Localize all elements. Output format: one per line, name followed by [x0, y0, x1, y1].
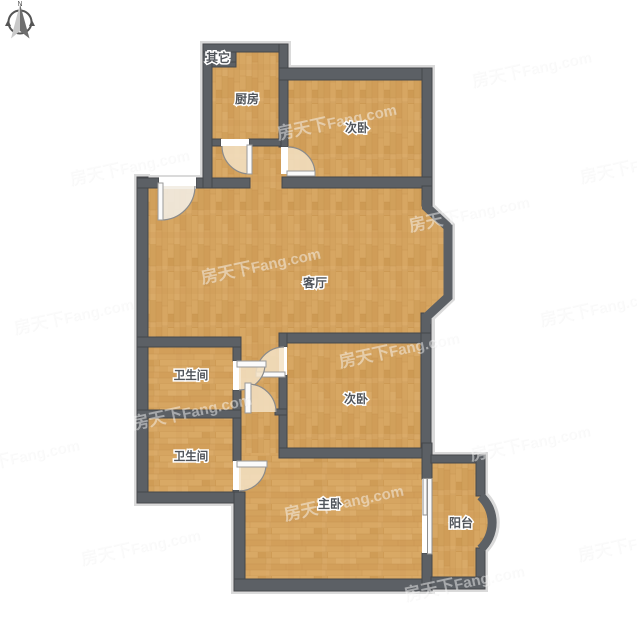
svg-text:主卧: 主卧 [318, 496, 342, 511]
svg-text:厨房: 厨房 [235, 91, 259, 106]
svg-text:阳台: 阳台 [449, 515, 473, 530]
svg-text:房天下Fang.com: 房天下Fang.com [11, 293, 134, 338]
svg-text:卫生间: 卫生间 [174, 449, 209, 463]
svg-text:房天下Fang.com: 房天下Fang.com [78, 524, 201, 569]
svg-text:房天下Fang.com: 房天下Fang.com [469, 46, 592, 91]
svg-text:其它: 其它 [206, 50, 230, 65]
svg-text:房天下Fang.com: 房天下Fang.com [575, 520, 637, 565]
svg-text:次卧: 次卧 [345, 120, 369, 135]
svg-text:卫生间: 卫生间 [174, 368, 209, 382]
svg-text:房天下Fang.com: 房天下Fang.com [577, 142, 637, 187]
svg-text:房天下Fang.com: 房天下Fang.com [468, 420, 591, 465]
svg-text:房天下Fang.com: 房天下Fang.com [537, 285, 637, 330]
svg-text:次卧: 次卧 [344, 391, 368, 406]
svg-text:客厅: 客厅 [302, 275, 327, 290]
